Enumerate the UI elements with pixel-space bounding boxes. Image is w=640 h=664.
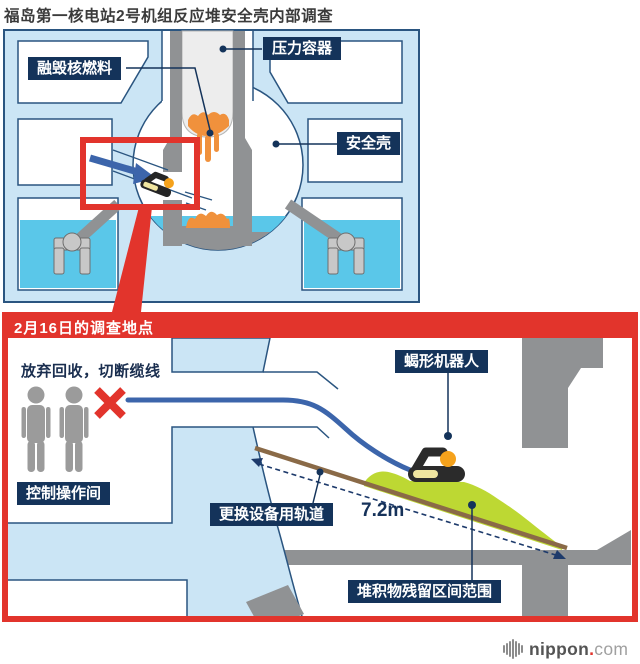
nippon-logo-icon [503, 639, 523, 659]
label-deposits-range: 堆积物残留区间范围 [348, 580, 501, 603]
wall-block-upper [172, 338, 270, 372]
robot-camera-ball [440, 451, 456, 467]
label-equipment-rail: 更换设备用轨道 [210, 503, 333, 526]
panel-header-title: 2月16日的调查地点 [14, 317, 154, 338]
building-mid-left [18, 119, 112, 185]
label-pressure-vessel: 压力容器 [263, 37, 341, 60]
label-containment-vessel: 安全壳 [337, 132, 400, 155]
nippon-logo: nippon.com [529, 639, 628, 660]
pressure-vessel-dot [220, 46, 227, 53]
rail-dot [317, 469, 324, 476]
deposits-dot [468, 501, 476, 509]
distance-value: 7.2m [361, 500, 404, 522]
support-column [522, 565, 568, 616]
melted-fuel-dot [207, 130, 214, 137]
pool-water-left [20, 220, 116, 288]
note-cable-cut: 放弃回收，切断缆线 [21, 360, 161, 381]
label-control-room: 控制操作间 [17, 482, 110, 505]
logo-text-light: com [594, 639, 628, 659]
page-title: 福岛第一核电站2号机组反应堆安全壳内部调查 [4, 4, 333, 26]
scorpion-robot-dot [444, 432, 452, 440]
infographic: 福岛第一核电站2号机组反应堆安全壳内部调查 融毁核燃料 压力容器 安全壳 2月1… [0, 0, 640, 664]
pedestal-floor [182, 226, 233, 244]
logo-text-bold: nippon [529, 639, 589, 659]
containment-dot [273, 141, 280, 148]
label-scorpion-robot: 蝎形机器人 [395, 350, 488, 373]
label-melted-fuel: 融毁核燃料 [28, 57, 121, 80]
